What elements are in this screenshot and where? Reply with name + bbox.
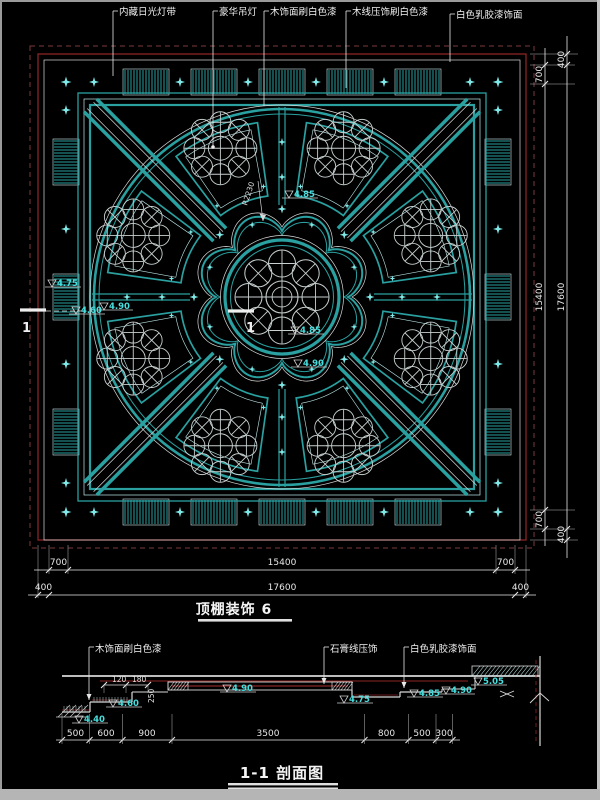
elevation-value: 4.85 [300,326,321,336]
dim-120: 120 [112,675,127,684]
plan-section-cut [20,310,254,311]
plan-right-dimensions: 700 15400 700 400 17600 400 [535,51,567,543]
elevation-value: 4.90 [451,686,472,696]
elevation-value: 4.75 [57,279,78,289]
plan-callouts: 内藏日光灯带 豪华吊灯 木饰面刷白色漆 木线压饰刷白色漆 白色乳胶漆饰面 [119,6,523,21]
dim-400: 400 [35,583,52,593]
dim-800: 800 [378,729,395,739]
callout-latex-paint: 白色乳胶漆饰面 [410,643,477,655]
cad-viewport: 内藏日光灯带 豪华吊灯 木饰面刷白色漆 木线压饰刷白色漆 白色乳胶漆饰面 4.8… [0,0,600,800]
callout-cove-light: 内藏日光灯带 [119,6,177,18]
dim-700: 700 [497,558,514,568]
dim-500: 500 [413,729,430,739]
elevation-value: 4.85 [419,689,440,699]
plan-bottom-dimensions: 700 15400 700 400 17600 400 [35,558,529,593]
dim-400: 400 [557,51,567,68]
dim-180: 180 [132,675,147,684]
section-callouts: 木饰面刷白色漆 石膏线压饰 白色乳胶漆饰面 [95,643,477,655]
dim-700: 700 [535,511,545,528]
dim-250: 250 [147,688,156,703]
cad-canvas: 内藏日光灯带 豪华吊灯 木饰面刷白色漆 木线压饰刷白色漆 白色乳胶漆饰面 4.8… [0,0,600,800]
elevation-value: 4.90 [303,359,324,369]
callout-latex-paint: 白色乳胶漆饰面 [456,9,523,21]
elevation-value: 5.05 [483,677,504,687]
dim-500: 500 [67,729,84,739]
elevation-value: 4.75 [349,695,370,705]
section-marker-center: 1 [246,321,255,336]
section-title: 1-1 剖面图 [240,764,324,782]
dim-400: 400 [512,583,529,593]
elevation-value: 4.60 [81,306,102,316]
elevation-value: 4.90 [109,302,130,312]
plan-elevation-marks [45,191,327,367]
elevation-value: 4.60 [118,699,139,709]
cad-linework [0,0,600,800]
dim-17600: 17600 [268,583,297,593]
dim-3500: 3500 [257,729,280,739]
dim-600: 600 [97,729,114,739]
dim-700: 700 [50,558,67,568]
section-marker-left: 1 [22,321,31,336]
elevation-value: 4.40 [84,715,105,725]
dim-15400: 15400 [535,282,545,311]
elevation-value: 4.85 [294,190,315,200]
dim-17600: 17600 [557,282,567,311]
dim-700: 700 [535,66,545,83]
callout-chandelier: 豪华吊灯 [219,6,258,18]
dim-400: 400 [557,526,567,543]
dim-15400: 15400 [268,558,297,568]
elevation-value: 4.90 [232,684,253,694]
callout-wood-panel: 木饰面刷白色漆 [270,6,337,18]
dim-300: 300 [435,729,452,739]
radius-dimension: R2230 [240,181,256,207]
callout-wood-trim: 木线压饰刷白色漆 [352,6,429,18]
callout-wood-panel: 木饰面刷白色漆 [95,643,162,655]
callout-gypsum-line: 石膏线压饰 [330,643,378,655]
dim-900: 900 [138,729,155,739]
plan-title: 顶棚装饰 6 [196,601,273,618]
section-drawing [56,647,549,746]
